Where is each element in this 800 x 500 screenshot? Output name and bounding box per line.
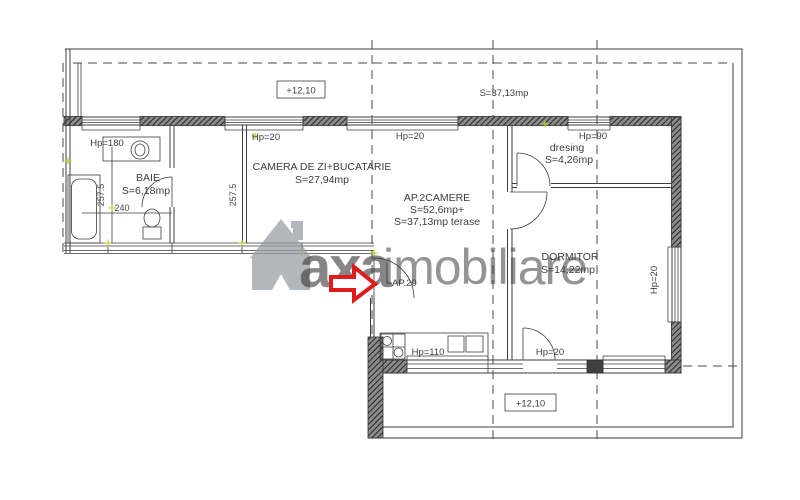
window-label-living-b: Hp=20 [396, 131, 424, 142]
entrance-label: AP.20 [392, 278, 417, 289]
window-bath [82, 117, 140, 130]
floor-plan-page: axa imobiliare +12,10 +12,10 S=37,13mp H… [0, 0, 800, 500]
window-bedroom-east [668, 247, 681, 322]
dim-hall-height: 257.5 [228, 184, 238, 207]
window-label-living-a: Hp=20 [252, 132, 280, 143]
floor-plan-drawing: axa imobiliare +12,10 +12,10 S=37,13mp H… [0, 0, 800, 500]
apartment-area-1: S=52,6mp+ [410, 204, 464, 216]
sink-basin [466, 336, 483, 352]
room-area-dressing: S=4,26mp [545, 154, 593, 166]
wall-shaft [243, 125, 247, 243]
level-mark-top: +12,10 [277, 81, 325, 98]
window-dressing [568, 117, 610, 130]
toilet-tank [143, 227, 161, 239]
window-label-kitchen: Hp=110 [412, 347, 445, 358]
toilet-bowl [144, 209, 160, 227]
window-label-bedroom-east: Hp=20 [649, 266, 660, 294]
room-area-bedroom: S=14,22mp [541, 264, 595, 276]
window-bedroom-south [603, 356, 665, 373]
apartment-label: AP.2CAMERE [404, 192, 470, 204]
wall-right [668, 117, 681, 373]
window-terrace-door-sides [488, 364, 587, 369]
window-living-a [225, 117, 303, 130]
level-value-top: +12,10 [286, 86, 315, 97]
window-label-bedroom-south: Hp=20 [536, 347, 564, 358]
room-area-living: S=27,94mp [295, 174, 349, 186]
room-area-bath: S=6,18mp [122, 185, 170, 197]
room-name-bedroom: DORMITOR [542, 251, 599, 263]
terrace-area-label: S=37,13mp [480, 88, 529, 99]
window-label-bath: Hp=180 [90, 138, 124, 149]
dim-bath-width: 240 [114, 203, 129, 213]
bathtub-inner [72, 179, 97, 239]
sink-basin [448, 336, 464, 352]
door-bedroom [510, 192, 547, 229]
window-label-dressing: Hp=90 [579, 131, 607, 142]
apartment-area-2: S=37,13mp terase [394, 216, 480, 228]
level-value-bottom: +12,10 [516, 399, 545, 410]
wall-bottom [377, 356, 681, 373]
room-name-bath: BAIE [136, 172, 160, 184]
level-mark-bottom: +12,10 [505, 394, 556, 411]
window-living-b [347, 117, 458, 130]
window-kitchen [407, 356, 488, 373]
watermark: axa imobiliare [250, 219, 587, 300]
room-name-dressing: dresing [550, 142, 585, 154]
dim-bath-height: 257.5 [96, 184, 106, 207]
room-name-living: CAMERA DE ZI+BUCATARIE [253, 161, 392, 173]
wall-dressing-south [512, 184, 672, 188]
